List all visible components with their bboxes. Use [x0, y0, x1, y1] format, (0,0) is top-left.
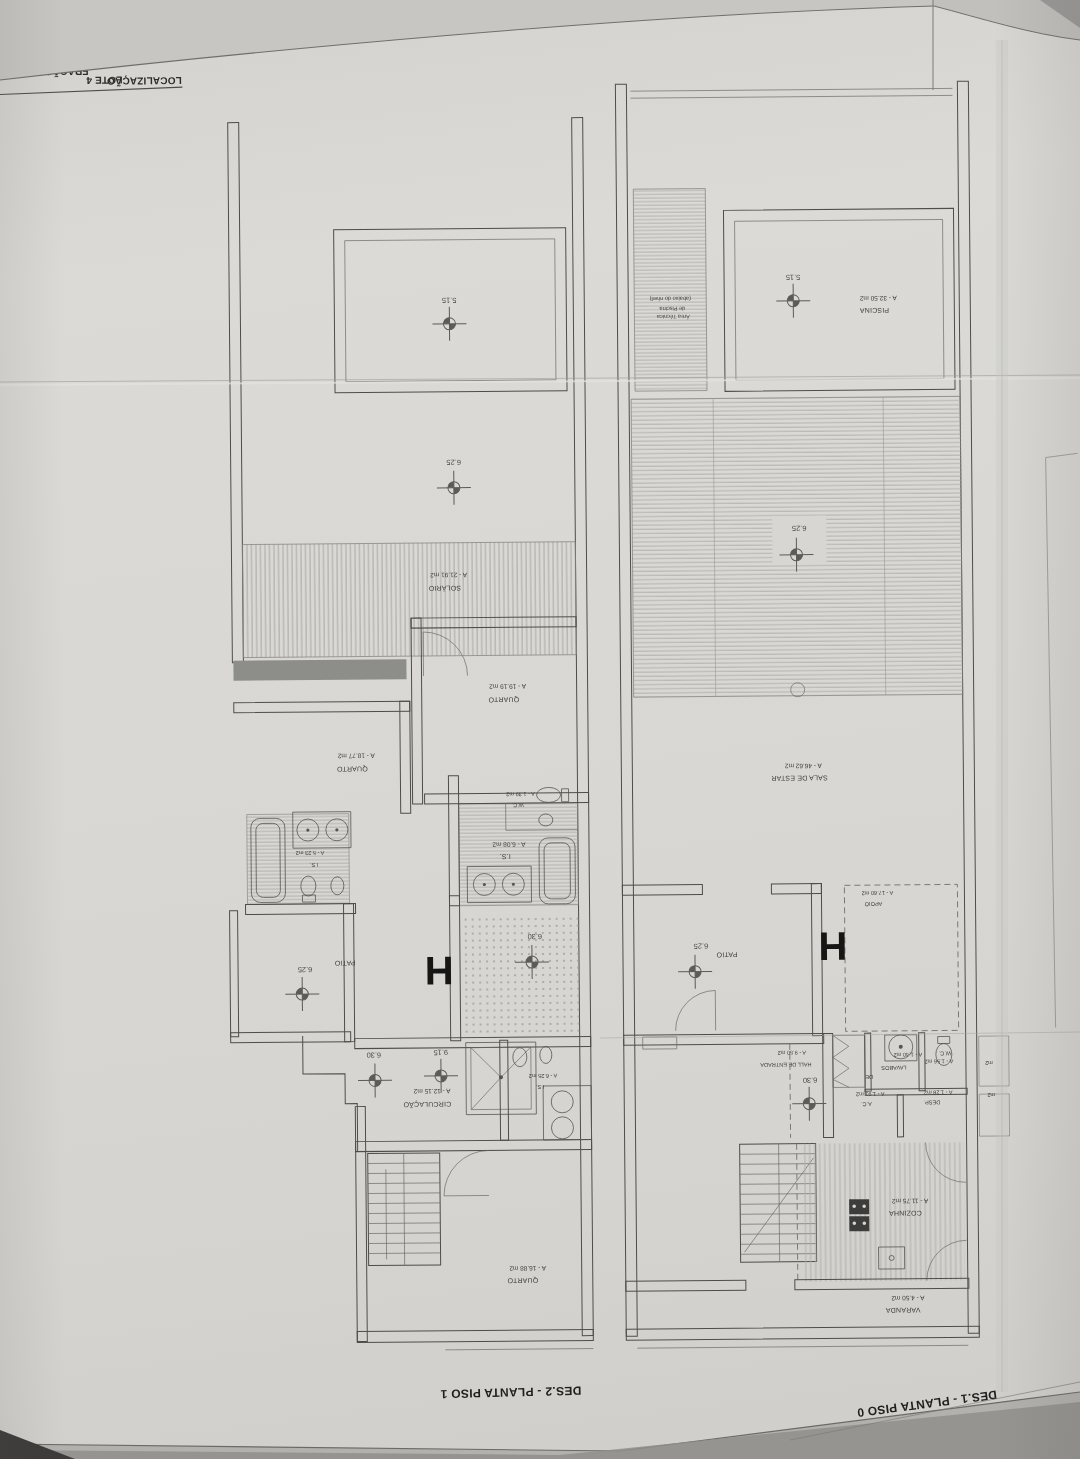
floor-plan-piso1 [223, 118, 594, 1352]
room-area: A - 18.77 m2 [337, 752, 374, 759]
level-value: 6.30 [366, 1050, 381, 1059]
room-area: A - 12.15 m2 [413, 1088, 450, 1095]
room-area: A - 1.91 m2 [856, 1091, 885, 1097]
pool-technical-note: Área Técnica [656, 314, 690, 320]
photographed-floorplan-sheet: PLANTAS_ARQUITETU DESCRIÇÃO FRAÇÃO "H"_M… [0, 0, 1080, 1459]
p1-stairs [368, 1153, 441, 1266]
level-value: 6.30 [527, 932, 542, 941]
stove [849, 1199, 869, 1214]
p0-pool [723, 208, 955, 391]
room-area: A - 6.25 m2 [529, 1073, 558, 1079]
room-label-lavabos: LAVABOS [881, 1065, 907, 1071]
level-value: 6.25 [446, 458, 461, 467]
unit-letter: H [424, 949, 453, 993]
level-marker [358, 1063, 392, 1097]
p1-patio [230, 904, 355, 1043]
room-area: A - 1.28 m2 [924, 1089, 953, 1095]
room-area: A - 9.50 m2 [777, 1050, 806, 1056]
room-label-quarto: QUARTO [507, 1276, 538, 1284]
p1-is-lower [500, 1040, 592, 1141]
edge-fragment: m2 [985, 1060, 993, 1066]
room-label-quarto: QUARTO [488, 695, 519, 703]
plan-caption-piso1: DES.2 - PLANTA PISO 1 [440, 1383, 581, 1401]
level-value: 6.25 [792, 524, 807, 533]
room-label-hall: HALL DE ENTRADA [760, 1062, 812, 1068]
pool-technical-note: (abaixo do nível) [649, 296, 691, 302]
titleblock-location-label: LOCALIZAÇÃO [107, 75, 182, 88]
p1-door-arc-quarto-bottom [444, 1150, 489, 1195]
level-marker [437, 471, 471, 505]
p0-pool-technical-area [633, 189, 707, 392]
edge-fragment: m2 [987, 1092, 995, 1098]
p1-step-wall [303, 1036, 358, 1152]
sink [551, 1117, 573, 1139]
level-value: 6.30 [803, 1076, 818, 1085]
level-marker [432, 307, 466, 341]
room-label-quarto: QUARTO [337, 765, 368, 773]
floorplan-drawing: PLANTAS_ARQUITETU DESCRIÇÃO FRAÇÃO "H"_M… [0, 0, 1080, 1459]
p1-bathroom-left [245, 812, 356, 915]
bidet [540, 1046, 552, 1063]
room-area: A - 16.88 m2 [509, 1265, 546, 1272]
room-label-patio: PATIO [334, 960, 355, 967]
room-label-cozinha: COZINHA [889, 1210, 922, 1217]
p1-outer-wall-right [572, 118, 594, 1336]
level-value: 5.15 [786, 273, 801, 282]
pool-technical-note: de Piscina [659, 306, 686, 312]
room-label-solario: SOLÁRIO [428, 585, 461, 593]
room-area: A - 17.60 m2 [862, 890, 894, 896]
room-label-piscina: PISCINA [859, 307, 889, 314]
room-area: A - 1.40 m2 [894, 1052, 923, 1058]
level-value: 9.15 [433, 1048, 448, 1057]
room-area: A - 4.50 m2 [891, 1295, 925, 1302]
room-area: A - 21.91 m2 [430, 572, 467, 579]
adjacent-sheet-fragments [974, 453, 1080, 1136]
p0-hall-dashed-line [790, 1044, 791, 1138]
level-value: 6.25 [694, 942, 709, 951]
p1-hatched-hall [462, 915, 580, 1038]
toilet [513, 1048, 527, 1067]
room-area: A - 11.75 m2 [892, 1198, 929, 1205]
level-marker [285, 977, 319, 1011]
unit-letter: H [818, 924, 847, 968]
room-area: A - 19.19 m2 [489, 683, 526, 690]
level-marker [792, 1087, 826, 1121]
p0-apoio-dashed-room [844, 884, 958, 1031]
p0-kitchen [804, 1142, 967, 1281]
p0-wardrobe [833, 1035, 865, 1087]
room-label-is: I.S. [499, 853, 510, 860]
room-label-patio: PATIO [716, 951, 737, 958]
room-area: A - 1.39 m2 [506, 791, 535, 797]
sink-counter [543, 1086, 591, 1140]
p0-small-cabinet [643, 1037, 677, 1049]
room-label-varanda: VARANDA [886, 1307, 921, 1314]
room-area: A - 32.50 m2 [859, 295, 896, 302]
room-label-circulacao: CIRCULAÇÃO [403, 1100, 451, 1109]
room-label-is: I.S. [310, 862, 319, 868]
room-label-is: I.S. [535, 1084, 544, 1090]
level-marker [776, 284, 810, 318]
room-area: A - 5.23 m2 [296, 850, 325, 856]
p0-door-arc-patio [675, 990, 715, 1030]
sink [551, 1091, 573, 1113]
room-label-wc: W.C. [938, 1050, 951, 1056]
p0-kitchen-floor [804, 1142, 965, 1281]
room-label-sala: SALA DE ESTAR [771, 774, 828, 781]
room-label-apoio: APOIO [864, 901, 882, 907]
label-de: DE [865, 1074, 873, 1080]
p1-pool [334, 228, 567, 393]
room-label-wc: W.C. [511, 802, 524, 808]
room-area: A - 1.56 m2 [925, 1058, 954, 1064]
floor-plan-piso0 [615, 80, 1080, 1348]
p1-solario-deck [242, 542, 576, 658]
toilet [537, 787, 561, 802]
room-area: A - 46.62 m2 [784, 763, 821, 770]
level-value: 6.25 [298, 965, 313, 974]
level-value: 5.15 [442, 296, 457, 305]
p1-outer-wall-left [228, 123, 244, 663]
room-area: A - 6.08 m2 [492, 841, 526, 848]
room-label-ac: A.C. [860, 1101, 871, 1107]
p1-roof-band [233, 659, 406, 681]
level-marker [678, 955, 712, 989]
room-label-desp: DESP. [924, 1100, 941, 1106]
